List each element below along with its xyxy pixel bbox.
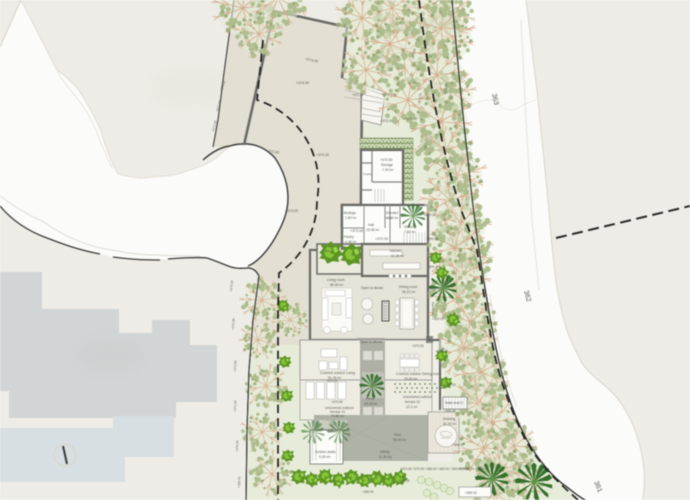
svg-text:+369.00: +369.00 <box>362 490 374 494</box>
svg-text:15.08 m²: 15.08 m² <box>366 228 380 232</box>
svg-text:+374.30: +374.30 <box>316 153 329 157</box>
svg-text:2.60 m²: 2.60 m² <box>345 216 357 220</box>
svg-text:Walk level 2: Walk level 2 <box>445 401 463 405</box>
svg-text:+369.00: +369.00 <box>444 409 456 413</box>
svg-text:Pond: Pond <box>366 397 374 401</box>
svg-text:+371.00: +371.00 <box>404 117 417 121</box>
svg-text:Covered outdoor Dining room: Covered outdoor Dining room <box>396 372 441 376</box>
svg-text:+372.00: +372.00 <box>375 237 388 241</box>
svg-text:Decking: Decking <box>443 417 455 421</box>
svg-text:2.04 m²: 2.04 m² <box>387 216 399 220</box>
svg-text:+370.50: +370.50 <box>331 400 343 404</box>
svg-text:Covered outdoor Living: Covered outdoor Living <box>320 371 355 375</box>
svg-text:4.48 m²: 4.48 m² <box>345 240 357 244</box>
svg-text:29.60 m²: 29.60 m² <box>404 377 418 381</box>
svg-text:+369.50: +369.50 <box>237 476 241 488</box>
svg-text:80.40 m²: 80.40 m² <box>330 283 344 287</box>
svg-text:+373.00: +373.00 <box>285 209 298 213</box>
svg-text:+370.50: +370.50 <box>326 379 338 383</box>
svg-text:Sunken seats: Sunken seats <box>315 450 336 454</box>
svg-text:+369.00: +369.00 <box>458 467 470 471</box>
svg-text:Hall: Hall <box>368 223 374 227</box>
svg-text:Barbecue: Barbecue <box>431 302 435 315</box>
svg-text:Uncovered outdoor: Uncovered outdoor <box>403 395 433 399</box>
svg-text:+370.00: +370.00 <box>326 429 338 433</box>
svg-text:+369.00: +369.00 <box>444 383 456 387</box>
svg-text:+370.50: +370.50 <box>412 344 424 348</box>
svg-text:Dining room: Dining room <box>399 285 417 289</box>
svg-text:12.1 m²: 12.1 m² <box>406 405 418 409</box>
svg-text:Open to above: Open to above <box>360 340 382 344</box>
svg-text:7.82 m²: 7.82 m² <box>404 230 416 234</box>
svg-text:+373.00: +373.00 <box>380 119 393 123</box>
svg-text:+370.50: +370.50 <box>380 158 392 162</box>
svg-text:Pantry: Pantry <box>344 235 354 239</box>
svg-text:+369.30: +369.30 <box>427 265 439 269</box>
svg-text:Open to above: Open to above <box>361 286 383 290</box>
svg-text:74.80 m²: 74.80 m² <box>331 414 345 418</box>
svg-text:Living room: Living room <box>327 278 345 282</box>
svg-text:+370.00 +370.00 +369.00 +369.4: +370.00 +370.00 +369.00 +369.40 +369.40 … <box>400 467 487 471</box>
svg-text:+370.00: +370.00 <box>398 479 410 483</box>
svg-text:+371.00: +371.00 <box>352 93 364 97</box>
svg-text:+370.50: +370.50 <box>235 440 239 452</box>
svg-text:11.26 m²: 11.26 m² <box>391 254 405 258</box>
svg-text:+369.00: +369.00 <box>424 213 436 217</box>
svg-text:Patio: Patio <box>322 249 330 253</box>
svg-text:Elevator: Elevator <box>386 211 399 215</box>
svg-text:+373.00: +373.00 <box>231 318 236 330</box>
svg-text:+373.00: +373.00 <box>350 229 363 233</box>
svg-text:(1.20 m): (1.20 m) <box>379 455 392 459</box>
svg-text:+372.00: +372.00 <box>233 360 237 372</box>
svg-text:terrace 02: terrace 02 <box>405 400 420 404</box>
svg-text:Infinity: Infinity <box>380 450 390 454</box>
svg-text:7.40 m²: 7.40 m² <box>382 168 394 172</box>
svg-text:+371.00: +371.00 <box>385 93 397 97</box>
svg-text:31.02 m²: 31.02 m² <box>443 422 457 426</box>
svg-text:+369.00: +369.00 <box>465 491 477 495</box>
svg-text:+369.30: +369.30 <box>429 287 441 291</box>
svg-text:+374.00: +374.00 <box>296 81 309 85</box>
svg-text:Stairs: Stairs <box>404 225 413 229</box>
svg-text:9.30 m²: 9.30 m² <box>319 455 331 459</box>
svg-text:95.00 m²: 95.00 m² <box>393 438 407 442</box>
svg-text:26.21 m²: 26.21 m² <box>402 290 416 294</box>
svg-text:Storage: Storage <box>381 163 393 167</box>
svg-text:+369.00: +369.00 <box>436 349 448 353</box>
svg-text:Bodega: Bodega <box>344 211 356 215</box>
svg-text:Pool: Pool <box>394 433 401 437</box>
svg-text:+369.00: +369.00 <box>432 317 444 321</box>
svg-text:Kitchen: Kitchen <box>390 249 401 253</box>
svg-text:Cuarto: Cuarto <box>363 172 372 176</box>
svg-text:+371.00: +371.00 <box>233 400 237 412</box>
svg-text:+369.00: +369.00 <box>452 443 464 447</box>
svg-text:+369.50: +369.50 <box>426 237 438 241</box>
svg-text:18.25 m²: 18.25 m² <box>364 402 378 406</box>
